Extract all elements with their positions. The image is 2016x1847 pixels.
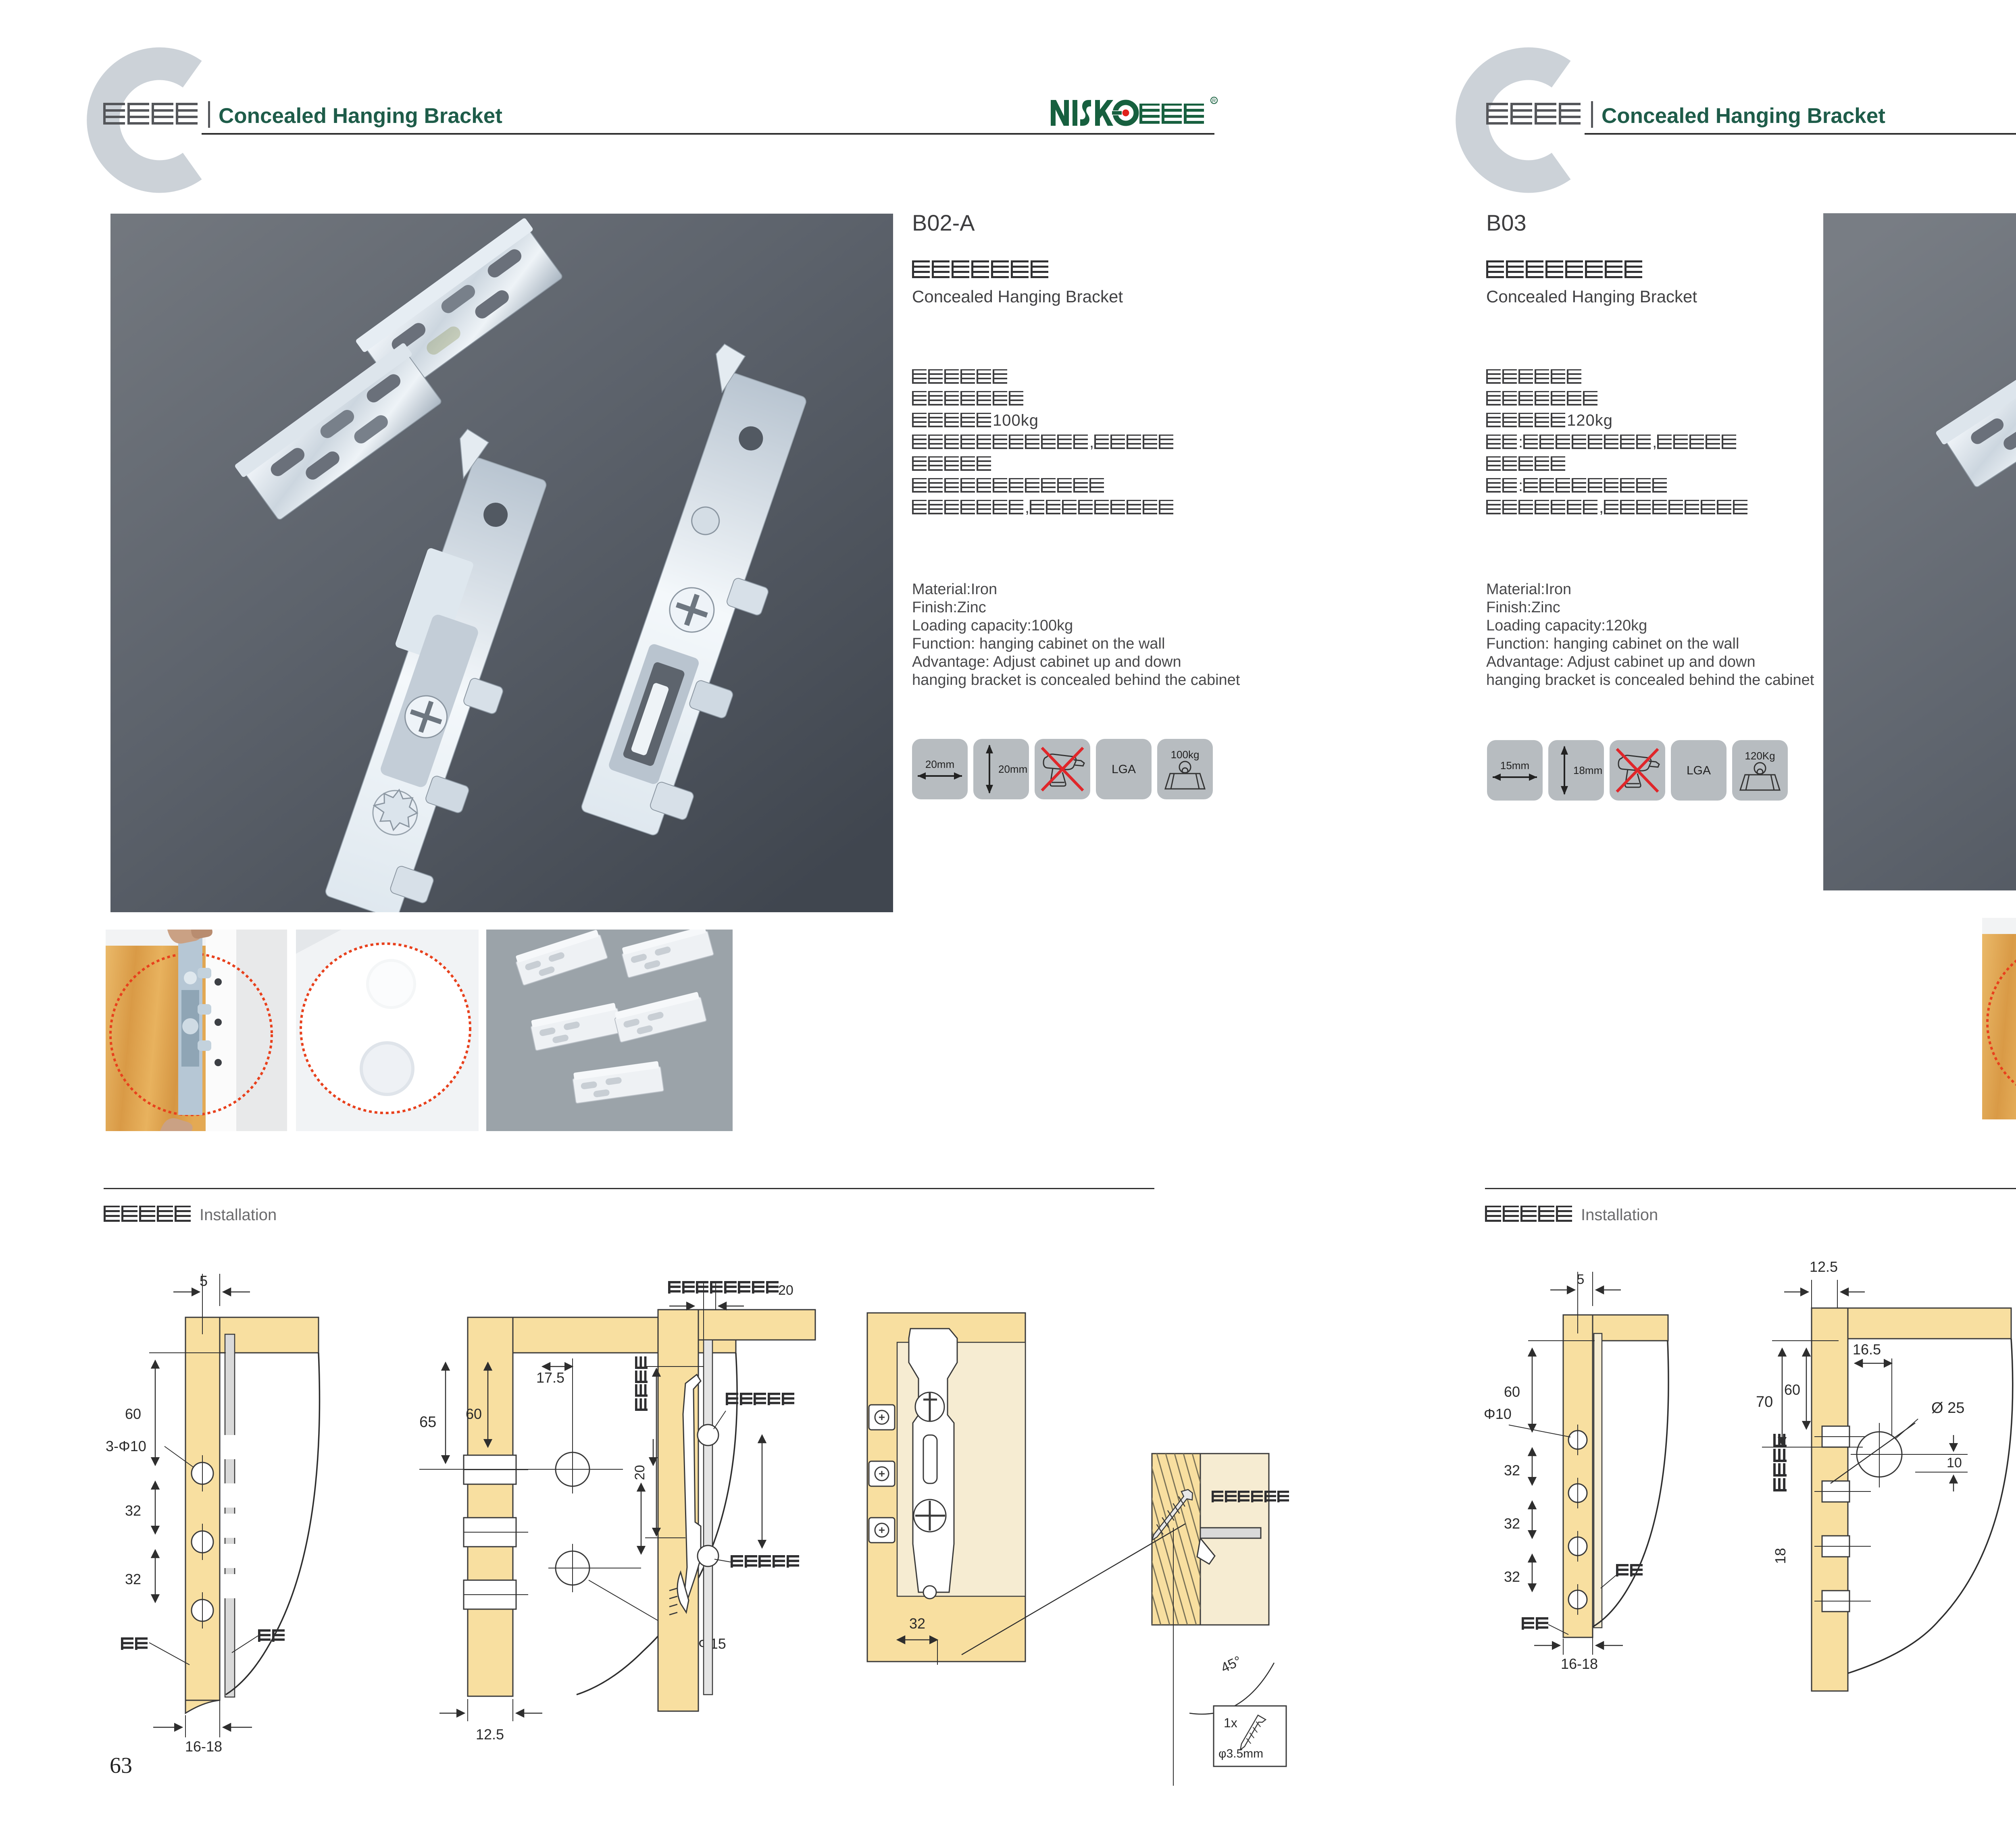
svg-text:5: 5 — [200, 1273, 208, 1289]
svg-text:20mm: 20mm — [998, 763, 1027, 775]
svg-text:32: 32 — [909, 1615, 925, 1632]
svg-text:60: 60 — [1504, 1383, 1520, 1400]
svg-text:17.5: 17.5 — [536, 1369, 564, 1386]
svg-text:60: 60 — [1784, 1381, 1800, 1398]
svg-text:16.5: 16.5 — [1853, 1341, 1881, 1358]
svg-text:12.5: 12.5 — [476, 1726, 504, 1743]
svg-text:18: 18 — [1772, 1548, 1789, 1564]
svg-text:32: 32 — [125, 1502, 141, 1519]
svg-text:32: 32 — [125, 1571, 141, 1587]
svg-text:32: 32 — [1504, 1515, 1520, 1532]
svg-text:120Kg: 120Kg — [1745, 750, 1775, 762]
svg-text:45°: 45° — [1218, 1653, 1244, 1676]
svg-text:65: 65 — [419, 1414, 436, 1431]
svg-text:φ3.5mm: φ3.5mm — [1218, 1747, 1263, 1760]
svg-text:Φ10: Φ10 — [1484, 1406, 1512, 1422]
svg-text:32: 32 — [1504, 1568, 1520, 1585]
svg-text:70: 70 — [1756, 1394, 1773, 1410]
svg-text:LGA: LGA — [1687, 764, 1711, 777]
svg-text:20: 20 — [632, 1465, 648, 1480]
svg-text:Ø 25: Ø 25 — [1931, 1400, 1964, 1416]
svg-text:LGA: LGA — [1112, 763, 1136, 776]
svg-text:10: 10 — [1947, 1455, 1962, 1471]
svg-text:60: 60 — [125, 1406, 141, 1422]
svg-text:16-18: 16-18 — [1561, 1656, 1598, 1672]
svg-text:1x: 1x — [1224, 1716, 1237, 1730]
svg-text:3-Φ10: 3-Φ10 — [106, 1438, 146, 1454]
svg-text:20: 20 — [778, 1283, 793, 1298]
svg-text:100kg: 100kg — [1171, 749, 1200, 761]
svg-text:16-18: 16-18 — [185, 1738, 222, 1755]
svg-text:12.5: 12.5 — [1810, 1258, 1838, 1275]
svg-text:32: 32 — [1504, 1462, 1520, 1479]
svg-text:20mm: 20mm — [925, 758, 954, 770]
svg-text:15mm: 15mm — [1500, 759, 1529, 772]
svg-text:18mm: 18mm — [1573, 764, 1602, 776]
svg-text:60: 60 — [466, 1406, 482, 1422]
